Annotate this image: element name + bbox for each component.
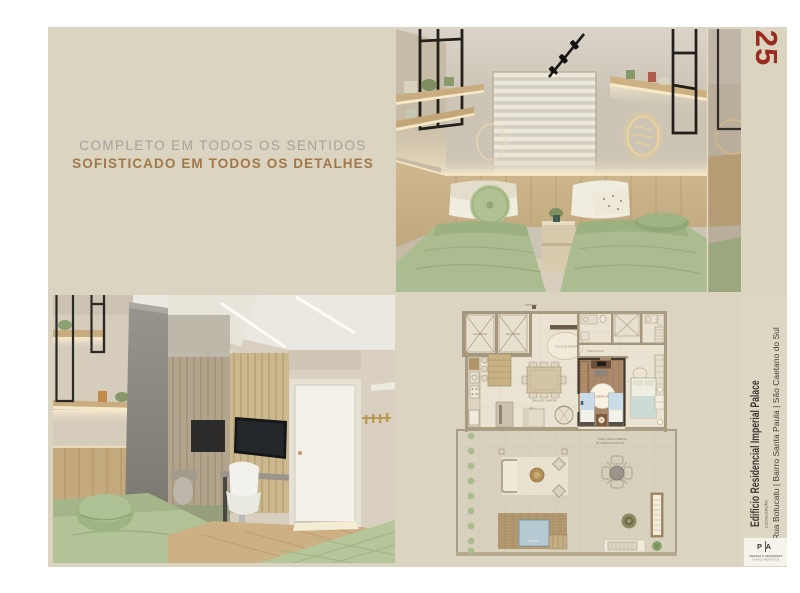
svg-text:ÁREA DESCOBERTA: ÁREA DESCOBERTA xyxy=(598,437,627,441)
svg-text:ELEVADOR: ELEVADOR xyxy=(473,332,487,336)
svg-text:ENTRADA: ENTRADA xyxy=(525,303,538,307)
svg-text:(P). ATENDE AO APTO 25: (P). ATENDE AO APTO 25 xyxy=(596,442,625,445)
svg-text:SALA DE JANTAR: SALA DE JANTAR xyxy=(532,399,558,403)
svg-text:SALA DE ESTAR: SALA DE ESTAR xyxy=(555,345,579,349)
svg-text:ELEVADOR: ELEVADOR xyxy=(506,332,520,336)
svg-text:PISCINA: PISCINA xyxy=(528,539,539,543)
